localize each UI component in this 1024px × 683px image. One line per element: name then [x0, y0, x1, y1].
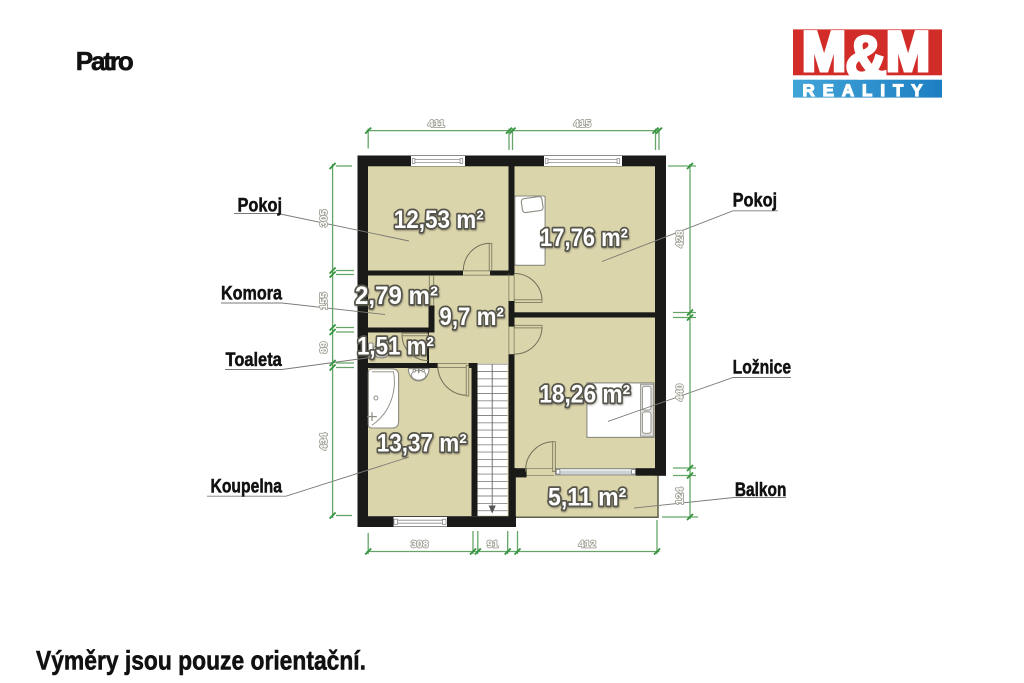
svg-text:M: M — [802, 20, 846, 83]
svg-text:308: 308 — [411, 539, 429, 551]
svg-text:Patro: Patro — [76, 46, 134, 76]
svg-text:17,76 m²: 17,76 m² — [540, 224, 628, 252]
svg-text:M: M — [886, 20, 930, 83]
svg-text:305: 305 — [318, 209, 330, 227]
svg-text:13,37 m²: 13,37 m² — [377, 430, 467, 458]
svg-text:91: 91 — [487, 539, 499, 551]
svg-text:Balkon: Balkon — [735, 479, 787, 501]
svg-text:440: 440 — [674, 384, 686, 402]
svg-text:Koupelna: Koupelna — [211, 476, 283, 498]
svg-text:18,26 m²: 18,26 m² — [539, 381, 630, 409]
svg-text:155: 155 — [318, 292, 330, 310]
svg-text:415: 415 — [574, 118, 592, 130]
svg-text:Pokoj: Pokoj — [733, 190, 778, 212]
svg-text:Pokoj: Pokoj — [238, 195, 283, 217]
svg-text:9,7 m²: 9,7 m² — [439, 303, 504, 331]
svg-text:89: 89 — [318, 342, 330, 354]
svg-text:REALITY: REALITY — [803, 81, 931, 100]
svg-text:12,53 m²: 12,53 m² — [394, 206, 484, 234]
svg-text:2,79 m²: 2,79 m² — [355, 282, 438, 310]
svg-text:411: 411 — [428, 118, 445, 130]
svg-text:1,51 m²: 1,51 m² — [357, 333, 434, 361]
svg-text:Výměry jsou pouze orientační.: Výměry jsou pouze orientační. — [36, 645, 366, 675]
svg-text:124: 124 — [674, 487, 686, 505]
svg-text:Ložnice: Ložnice — [733, 356, 792, 378]
svg-text:Toaleta: Toaleta — [226, 349, 282, 371]
svg-text:428: 428 — [674, 230, 686, 248]
svg-text:412: 412 — [579, 539, 597, 551]
svg-text:434: 434 — [318, 433, 330, 451]
svg-text:5,11 m²: 5,11 m² — [548, 484, 626, 512]
svg-text:Komora: Komora — [221, 282, 282, 304]
